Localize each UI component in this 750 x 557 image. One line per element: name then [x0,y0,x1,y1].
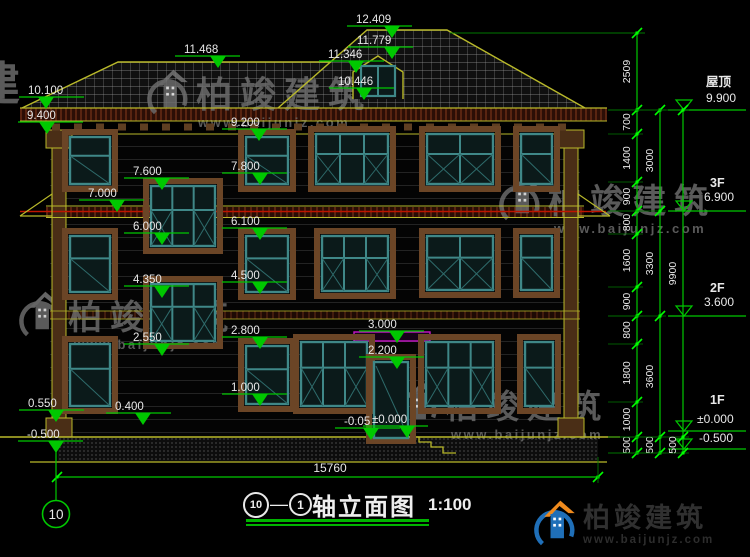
right-level-marker: 3F6.900 [668,176,746,211]
svg-text:3.600: 3.600 [704,295,734,309]
title-underline-thin [246,524,429,526]
axis-dash: — [270,494,288,515]
window [65,132,115,189]
drawing-linework: 12.40911.77911.46811.34610.44610.1009.40… [0,0,750,557]
svg-text:3.000: 3.000 [368,319,397,331]
dentil [162,124,170,131]
svg-text:1800: 1800 [621,361,633,385]
window [317,231,393,296]
svg-text:0.400: 0.400 [115,401,144,413]
right-level-marker: 屋顶9.900 [668,74,746,110]
svg-text:10.446: 10.446 [338,76,373,88]
svg-text:2.200: 2.200 [368,345,397,357]
svg-text:3000: 3000 [644,149,656,173]
right-level-marker: 2F3.600 [668,281,746,316]
brand-url: www.baijunjz.com [583,534,714,546]
svg-text:±0.000: ±0.000 [697,412,734,426]
svg-text:1400: 1400 [621,146,633,170]
brand-mark-icon [533,497,577,549]
svg-text:500: 500 [644,436,656,454]
level-marker: 0.400 [106,401,171,425]
axis-bubble-from: 10 [243,492,269,518]
svg-text:700: 700 [621,113,633,131]
window [421,337,498,411]
svg-text:800: 800 [621,214,633,232]
svg-text:11.468: 11.468 [184,44,218,56]
svg-text:9.400: 9.400 [27,110,56,122]
cad-elevation-canvas: 建柏竣建筑www.baijunjz.com柏竣建筑www.baijunjz.co… [0,0,750,557]
svg-text:500: 500 [667,436,679,454]
svg-text:1000: 1000 [621,408,633,432]
side-eave-left [20,194,52,216]
svg-text:900: 900 [621,188,633,206]
window [311,129,393,189]
svg-text:1600: 1600 [621,249,633,273]
svg-text:11.346: 11.346 [328,49,362,61]
svg-text:6.900: 6.900 [704,190,734,204]
right-level-marker: 1F±0.000 [668,393,746,431]
svg-text:7.000: 7.000 [88,188,117,200]
window [516,231,557,295]
svg-text:屋顶: 屋顶 [706,74,732,89]
overall-width-dimension: 15760 [52,457,603,483]
svg-text:4.350: 4.350 [133,274,162,286]
drawing-title: 10 — 1 轴立面图 1:100 [243,487,471,522]
svg-text:7.800: 7.800 [231,161,260,173]
window [241,231,293,297]
svg-text:±0.000: ±0.000 [372,414,407,426]
dimension-chain: 25097001400900800160090080018001000500 [608,28,643,458]
window [296,337,372,411]
svg-text:3F: 3F [710,176,725,190]
svg-text:-0.500: -0.500 [27,429,60,441]
window [146,181,220,251]
brand-logo: 柏竣建筑 www.baijunjz.com [533,497,714,554]
brand-name: 柏竣建筑 [583,505,714,532]
title-scale: 1:100 [428,495,471,515]
svg-text:6.000: 6.000 [133,221,162,233]
axis-bubble: 10 [43,448,70,528]
dentil [184,124,192,131]
svg-text:500: 500 [621,436,633,454]
svg-text:900: 900 [621,293,633,311]
svg-text:9.200: 9.200 [231,117,260,129]
svg-text:2509: 2509 [621,60,633,84]
title-underline-thick [246,519,429,522]
level-marker: 11.468 [175,44,240,68]
svg-text:10.100: 10.100 [28,85,63,97]
level-marker: -0.500 [18,429,83,453]
svg-text:9.900: 9.900 [706,91,736,105]
svg-text:2.800: 2.800 [231,325,260,337]
title-text: 轴立面图 [312,487,416,522]
window [516,129,557,189]
dentil [118,124,126,131]
window [241,341,293,409]
dentil [206,124,214,131]
window [65,231,115,297]
svg-text:12.409: 12.409 [356,14,391,26]
window [422,231,498,295]
svg-text:3300: 3300 [644,252,656,276]
svg-text:7.600: 7.600 [133,166,162,178]
svg-text:3600: 3600 [644,365,656,389]
right-roof-outline [278,30,585,108]
level-marker: 7.000 [79,188,144,212]
dentil [404,124,412,131]
svg-text:1F: 1F [710,393,725,407]
svg-text:1.000: 1.000 [231,382,260,394]
svg-text:6.100: 6.100 [231,216,260,228]
svg-text:800: 800 [621,321,633,339]
svg-text:4.500: 4.500 [231,270,260,282]
svg-text:2.550: 2.550 [133,332,162,344]
window [422,129,498,189]
svg-text:10: 10 [48,507,63,522]
svg-text:2F: 2F [710,281,725,295]
left-roof-outline [22,62,331,108]
svg-text:0.550: 0.550 [28,398,57,410]
window [65,339,115,411]
side-eave-right [578,194,610,216]
svg-text:9900: 9900 [667,262,679,286]
svg-text:15760: 15760 [313,461,347,475]
svg-text:11.779: 11.779 [357,35,391,47]
axis-bubble-to: 1 [289,493,312,516]
svg-text:-0.500: -0.500 [699,431,733,445]
dentil [140,124,148,131]
window [520,337,558,411]
brand-mark-icon [533,497,577,554]
